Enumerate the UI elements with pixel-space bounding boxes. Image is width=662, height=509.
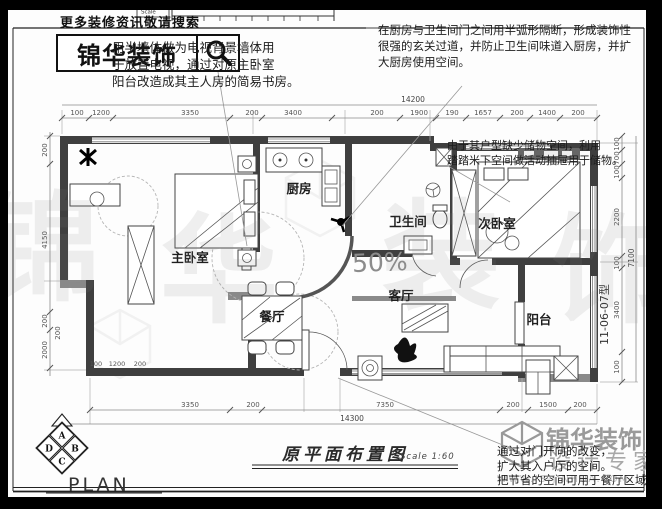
annotation-arc-partition: 在厨房与卫生间门之间用半弧形隔断，形成装饰性 很强的玄关过道，并防止卫生间味道入… bbox=[378, 22, 654, 70]
svg-text:200: 200 bbox=[54, 326, 62, 339]
floor-plan-sheet: { "header": { "search_hint": "更多装修资讯敬请搜索… bbox=[0, 0, 662, 509]
entry-door-leaf bbox=[302, 330, 309, 370]
dim-top-total: 14200 bbox=[401, 95, 425, 104]
svg-text:200: 200 bbox=[510, 109, 523, 117]
annotation-entry-door: 通过对门开向的改变， 扩大其入户厅的空间。 把节省的空间可用于餐厅区域 bbox=[497, 444, 655, 488]
top-border bbox=[0, 0, 662, 10]
svg-text:200: 200 bbox=[41, 143, 49, 156]
svg-text:4150: 4150 bbox=[41, 231, 49, 249]
right-border bbox=[646, 0, 662, 509]
study-desk bbox=[70, 184, 120, 206]
compass-c: C bbox=[58, 458, 65, 468]
compass-d: D bbox=[45, 445, 53, 455]
svg-text:2000: 2000 bbox=[41, 341, 49, 359]
room-label-living: 客厅 bbox=[387, 288, 414, 303]
room-label-kitchen: 厨房 bbox=[286, 181, 311, 196]
svg-text:1900: 1900 bbox=[410, 109, 428, 117]
svg-text:100: 100 bbox=[70, 109, 83, 117]
master-bedroom-furniture bbox=[70, 148, 258, 304]
svg-text:200: 200 bbox=[41, 314, 49, 327]
left-border bbox=[0, 0, 8, 509]
plant-icon bbox=[394, 337, 417, 362]
svg-text:2200: 2200 bbox=[613, 208, 621, 226]
plan-scale: Scale 1:60 bbox=[400, 452, 455, 462]
svg-text:100: 100 bbox=[90, 360, 102, 368]
svg-text:1200: 1200 bbox=[109, 360, 126, 368]
room-label-second: 次卧室 bbox=[478, 216, 516, 231]
unit-type-label: 11-06-07型 bbox=[597, 284, 611, 345]
plan-caption: 原平面布置图 bbox=[282, 440, 408, 465]
svg-text:200: 200 bbox=[573, 401, 586, 409]
nightstand bbox=[238, 250, 256, 266]
compass-rose: A B C D bbox=[36, 414, 88, 474]
dining-chair bbox=[248, 341, 266, 354]
room-label-balcony: 阳台 bbox=[526, 312, 551, 327]
dining-chair bbox=[276, 282, 294, 295]
plant-icon bbox=[80, 148, 96, 166]
svg-text:200: 200 bbox=[571, 109, 584, 117]
nightstand bbox=[238, 156, 256, 172]
dim-right-total: 7100 bbox=[627, 248, 636, 267]
dim-bottom-total: 14300 bbox=[340, 414, 364, 423]
svg-text:3400: 3400 bbox=[284, 109, 302, 117]
svg-text:3400: 3400 bbox=[613, 301, 621, 319]
svg-text:190: 190 bbox=[445, 109, 458, 117]
bedroom2-door-arc bbox=[460, 260, 488, 288]
svg-text:200: 200 bbox=[370, 109, 383, 117]
sofa bbox=[450, 346, 560, 356]
bath-door-arc bbox=[412, 252, 436, 276]
svg-text:200: 200 bbox=[246, 401, 259, 409]
svg-text:200: 200 bbox=[245, 109, 258, 117]
plan-word: PLAN bbox=[68, 474, 130, 496]
dining-chair bbox=[276, 341, 294, 354]
svg-text:3350: 3350 bbox=[181, 401, 199, 409]
arc-partition bbox=[290, 236, 352, 298]
room-label-master: 主卧室 bbox=[171, 250, 209, 265]
svg-text:7350: 7350 bbox=[376, 401, 394, 409]
room-label-dining: 餐厅 bbox=[258, 309, 285, 324]
svg-text:1657: 1657 bbox=[474, 109, 492, 117]
percent-watermark: 50% bbox=[352, 247, 409, 278]
compass-b: B bbox=[71, 445, 79, 455]
svg-text:1400: 1400 bbox=[538, 109, 556, 117]
balcony-door-leaf bbox=[515, 302, 524, 344]
bottom-border bbox=[0, 497, 662, 509]
svg-text:100: 100 bbox=[613, 256, 621, 269]
room-label-bath: 卫生间 bbox=[389, 214, 427, 229]
stove bbox=[266, 148, 322, 172]
compass-a: A bbox=[58, 432, 67, 442]
toilet bbox=[433, 210, 447, 228]
search-hint-text: 更多装修资讯敬请搜索 bbox=[60, 12, 200, 31]
svg-text:200: 200 bbox=[506, 401, 519, 409]
dining-chair bbox=[248, 282, 266, 295]
svg-text:1200: 1200 bbox=[92, 109, 110, 117]
annotation-tatami-storage: 由于其户型缺少储物空间，利用 踏踏米下空间做活动抽屉用于储物。 bbox=[447, 138, 655, 169]
kitchen-furniture bbox=[266, 148, 340, 206]
svg-text:200: 200 bbox=[134, 360, 146, 368]
vanity-sink bbox=[404, 236, 432, 254]
annotation-tv-wall: 用半墙体做为电视背景墙体用 于放置电视，通过对原主卧室 阳台改造成其主人房的简易… bbox=[112, 40, 368, 91]
entry-door-arc bbox=[309, 332, 347, 370]
svg-text:100: 100 bbox=[613, 360, 621, 373]
svg-text:3350: 3350 bbox=[181, 109, 199, 117]
svg-text:1500: 1500 bbox=[539, 401, 557, 409]
